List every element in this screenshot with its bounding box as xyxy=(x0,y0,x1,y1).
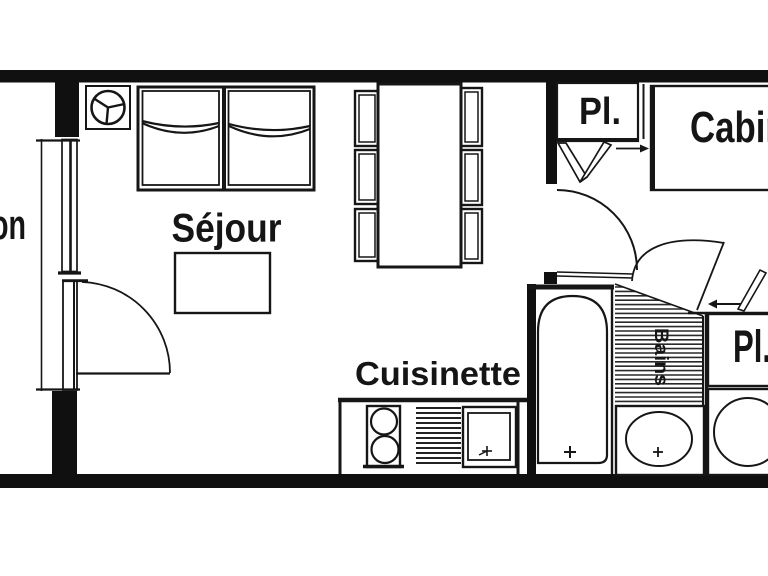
svg-text:Séjour: Séjour xyxy=(172,207,282,251)
svg-text:Pl.: Pl. xyxy=(579,91,621,133)
svg-text:Cabine: Cabine xyxy=(690,103,768,152)
svg-text:Bains: Bains xyxy=(650,328,671,386)
svg-text:Cuisinette: Cuisinette xyxy=(355,356,521,393)
svg-text:on: on xyxy=(0,201,26,248)
svg-text:Pl.: Pl. xyxy=(733,321,768,372)
